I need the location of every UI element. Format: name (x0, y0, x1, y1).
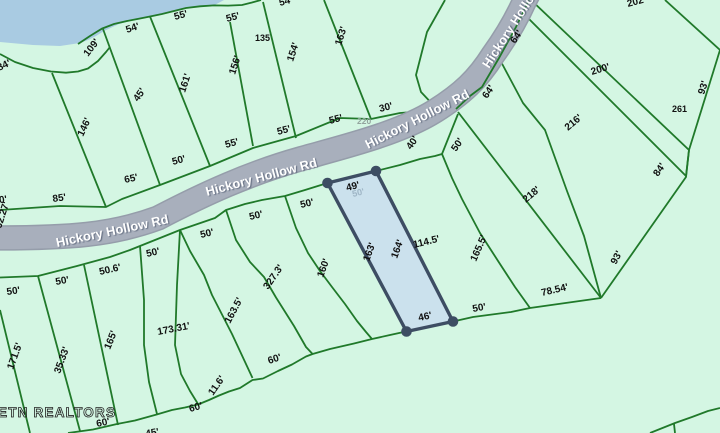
svg-text:50': 50' (6, 285, 21, 298)
svg-text:ETN REALTORS: ETN REALTORS (0, 405, 116, 420)
svg-text:220: 220 (357, 116, 371, 126)
svg-text:135: 135 (255, 33, 270, 43)
svg-text:85': 85' (52, 192, 67, 205)
svg-text:261: 261 (672, 104, 687, 114)
svg-text:50': 50' (472, 302, 487, 315)
svg-text:50': 50' (55, 275, 70, 288)
